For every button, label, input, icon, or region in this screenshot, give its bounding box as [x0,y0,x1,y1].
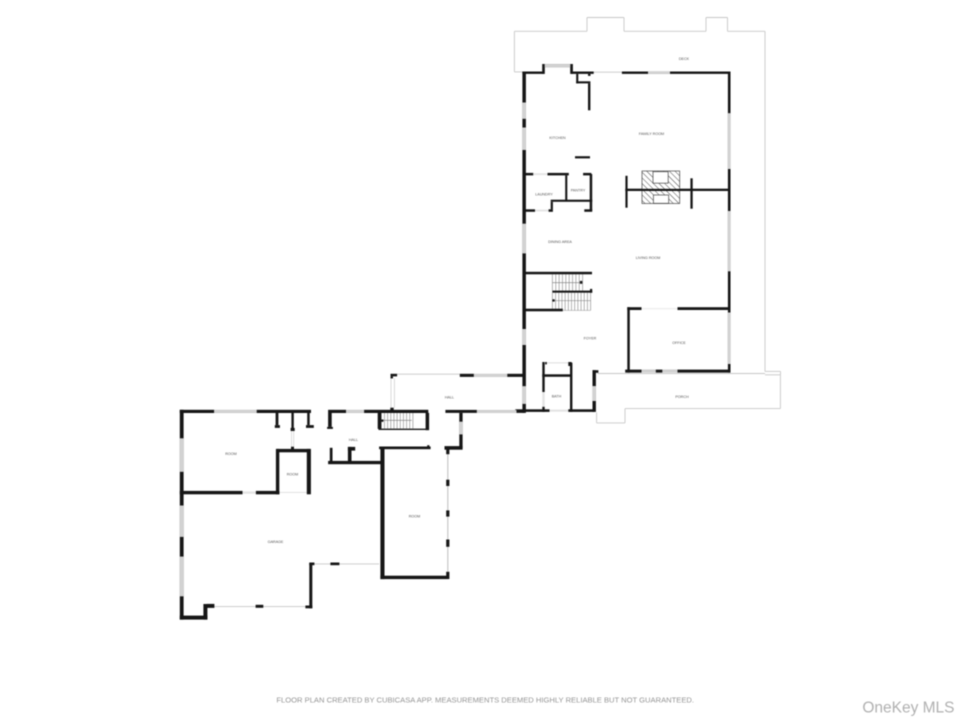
svg-text:LIVING ROOM: LIVING ROOM [636,256,661,260]
svg-text:LAUNDRY: LAUNDRY [535,193,553,197]
svg-text:HALL: HALL [349,438,358,442]
svg-text:BATH: BATH [552,395,562,399]
svg-text:OFFICE: OFFICE [672,341,686,345]
svg-text:KITCHEN: KITCHEN [549,136,566,140]
svg-text:ROOM: ROOM [287,472,298,476]
svg-text:DECK: DECK [679,57,690,61]
svg-text:HALL: HALL [445,395,454,399]
svg-text:ROOM: ROOM [409,514,420,518]
svg-text:FLOOR PLAN CREATED BY CUBICASA: FLOOR PLAN CREATED BY CUBICASA APP. MEAS… [276,695,694,704]
svg-text:DINING AREA: DINING AREA [548,240,572,244]
svg-text:PORCH: PORCH [675,395,689,399]
svg-text:FAMILY ROOM: FAMILY ROOM [639,132,664,136]
svg-text:PANTRY: PANTRY [571,189,586,193]
svg-text:GARAGE: GARAGE [268,540,284,544]
svg-text:OneKey MLS: OneKey MLS [862,700,954,717]
svg-text:FOYER: FOYER [584,336,597,340]
svg-text:ROOM: ROOM [225,452,236,456]
